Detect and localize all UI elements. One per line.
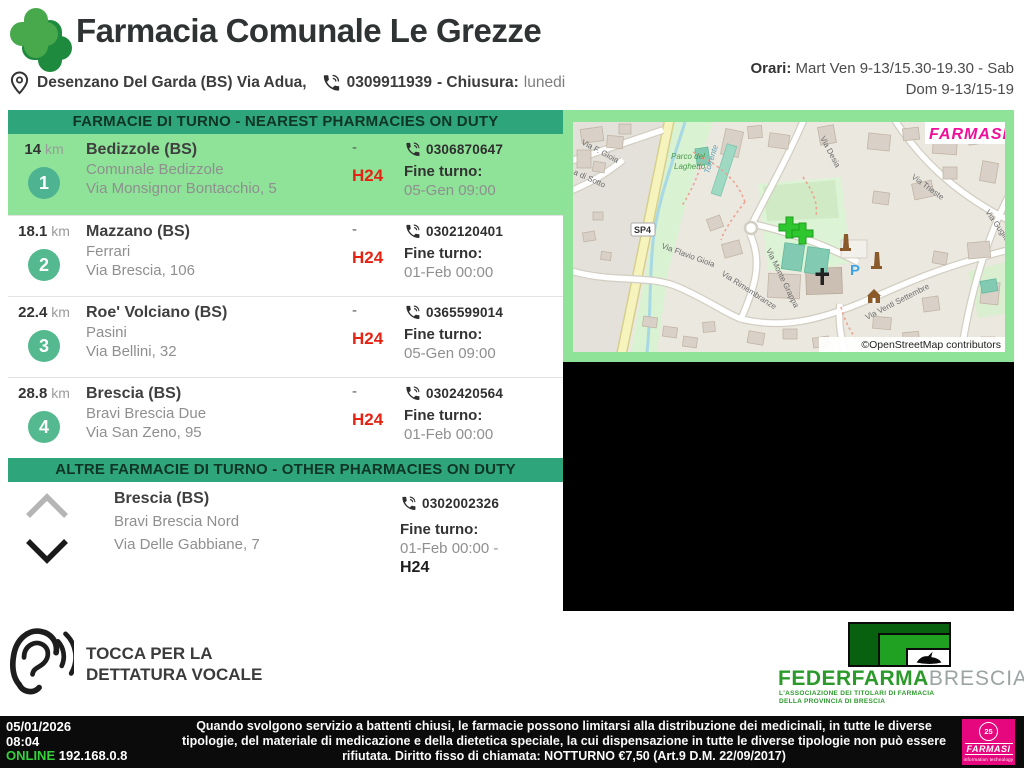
blank-display-area [563,362,1014,611]
pharmacy-name: Bravi Brescia Due [86,404,352,423]
pharmacy-street: Via Bellini, 32 [86,342,352,361]
fine-turno-value: 05-Gen 09:00 [404,344,563,363]
phone-icon [404,141,421,158]
pharmacy-name: Comunale Bedizzole [86,160,352,179]
pharmacy-phone: 0302420564 [426,386,503,401]
phone-icon [404,223,421,240]
pharmacy-street: Via Brescia, 106 [86,261,352,280]
phone-icon [404,385,421,402]
status-time: 08:04 [6,735,127,750]
ear-icon [8,626,74,702]
status-date: 05/01/2026 [6,720,127,735]
online-indicator: ONLINE [6,748,55,763]
h24-badge: H24 [352,166,404,186]
distance-value: 14 [24,141,41,158]
distance-unit: km [47,385,70,401]
fine-turno-value: 05-Gen 09:00 [404,181,563,200]
rank-badge: 1 [28,167,60,199]
pharmacy-name: Ferrari [86,242,352,261]
pharmacy-row-4[interactable]: 28.8 km 4 Brescia (BS) Bravi Brescia Due… [8,377,563,458]
federfarma-region: BRESCIA [929,667,1024,690]
closure-value: lunedi [524,74,565,92]
pharmacy-street: Via San Zeno, 95 [86,423,352,442]
pharmacy-city: Bedizzole (BS) [86,140,352,160]
farmasi-tagline: information technology [964,757,1014,762]
closure-label: - Chiusura: [437,74,519,92]
duty-pharmacies-list: FARMACIE DI TURNO - NEAREST PHARMACIES O… [8,110,563,612]
fine-turno-value: 01-Feb 00:00 [404,263,563,282]
svg-text:©OpenStreetMap contributors: ©OpenStreetMap contributors [861,339,1001,351]
federfarma-emblem [848,622,951,667]
h24-badge: H24 [400,558,499,578]
federfarma-logo: FEDERFARMABRESCIA L'ASSOCIAZIONE DEI TIT… [778,620,1018,714]
rank-badge: 4 [28,411,60,443]
distance-value: 18.1 [18,223,47,240]
parking-icon: P [850,262,860,279]
page-title: Farmacia Comunale Le Grezze [76,12,541,50]
pharmacy-phone: 0365599014 [426,305,503,320]
fine-turno-value: 01-Feb 00:00 - [400,539,499,558]
distance-value: 28.8 [18,385,47,402]
h24-badge: H24 [352,248,404,268]
scroll-up-button[interactable] [24,490,70,522]
service-notice: Quando svolgono servizio a battenti chiu… [170,719,958,764]
pharmacy-address: Desenzano Del Garda (BS) Via Adua, [37,74,307,92]
pharmacy-street: Via Monsignor Bontacchio, 5 [86,179,352,198]
voice-line2: DETTATURA VOCALE [86,664,262,685]
fine-turno-value: 01-Feb 00:00 [404,425,563,444]
scroll-down-button[interactable] [24,535,70,567]
pharmacy-city: Brescia (BS) [86,384,352,404]
status-bar: 05/01/2026 08:04 ONLINE 192.168.0.8 Quan… [0,716,1024,768]
pharmacy-phone: 0306870647 [426,142,503,157]
phone-icon [321,73,341,93]
phone-icon [404,304,421,321]
dash: - [352,139,404,157]
distance-unit: km [41,141,64,157]
pharmacy-phone: 0309911939 [347,74,432,92]
fine-turno-label: Fine turno: [404,162,563,181]
farmasi-watermark: FARMASI [925,122,1005,144]
pharmacy-cross-logo [10,8,72,74]
fine-turno-label: Fine turno: [404,325,563,344]
pharmacy-street: Via Delle Gabbiane, 7 [114,533,260,556]
map[interactable]: P SP4 Via F. Gioia a di Sotto Torrente P… [573,122,1005,352]
park-label: Laghetto [674,162,706,171]
ip-address: 192.168.0.8 [55,748,127,763]
pharmacy-row-2[interactable]: 18.1 km 2 Mazzano (BS) Ferrari Via Bresc… [8,215,563,296]
phone-icon [400,495,417,512]
park-label: Parco del [671,152,705,161]
farmasi-badge: 25 FARMASI information technology [962,719,1015,765]
svg-text:FARMASI: FARMASI [929,126,1005,143]
pharmacy-city: Brescia (BS) [114,488,260,510]
location-pin-icon [10,71,29,95]
pharmacy-city: Roe' Volciano (BS) [86,303,352,323]
federfarma-name: FEDERFARMA [778,667,929,690]
other-banner: ALTRE FARMACIE DI TURNO - OTHER PHARMACI… [8,458,563,482]
pharmacy-phone: 0302002326 [422,496,499,511]
map-panel: P SP4 Via F. Gioia a di Sotto Torrente P… [563,110,1014,362]
map-attribution: ©OpenStreetMap contributors [819,337,1005,352]
distance-unit: km [47,304,70,320]
distance-unit: km [47,223,70,239]
pharmacy-name: Pasini [86,323,352,342]
dash: - [352,383,404,401]
other-pharmacy-row[interactable]: Brescia (BS) Bravi Brescia Nord Via Dell… [8,482,563,612]
pharmacy-name: Bravi Brescia Nord [114,510,260,533]
svg-text:SP4: SP4 [634,225,651,235]
h24-badge: H24 [352,410,404,430]
farmasi-name: FARMASI [965,743,1013,755]
pharmacy-row-1[interactable]: 14 km 1 Bedizzole (BS) Comunale Bedizzol… [8,134,563,215]
anniversary-emblem: 25 [979,722,998,741]
federfarma-sub2: DELLA PROVINCIA DI BRESCIA [779,698,934,706]
fine-turno-label: Fine turno: [404,244,563,263]
duty-banner: FARMACIE DI TURNO - NEAREST PHARMACIES O… [8,110,563,134]
pharmacy-city: Mazzano (BS) [86,222,352,242]
voice-line1: TOCCA PER LA [86,643,262,664]
distance-value: 22.4 [18,304,47,321]
voice-dictation-button[interactable]: TOCCA PER LA DETTATURA VOCALE [8,622,308,706]
rank-badge: 3 [28,330,60,362]
h24-badge: H24 [352,329,404,349]
pharmacy-row-3[interactable]: 22.4 km 3 Roe' Volciano (BS) Pasini Via … [8,296,563,377]
sp4-road-badge: SP4 [631,223,655,236]
fine-turno-label: Fine turno: [400,520,499,539]
dash: - [352,221,404,239]
rank-badge: 2 [28,249,60,281]
fine-turno-label: Fine turno: [404,406,563,425]
federfarma-sub1: L'ASSOCIAZIONE DEI TITOLARI DI FARMACIA [779,690,934,698]
bird-icon [912,650,946,666]
dash: - [352,302,404,320]
pharmacy-phone: 0302120401 [426,224,503,239]
opening-hours: Orari: Mart Ven 9-13/15.30-19.30 - Sab D… [694,58,1014,100]
